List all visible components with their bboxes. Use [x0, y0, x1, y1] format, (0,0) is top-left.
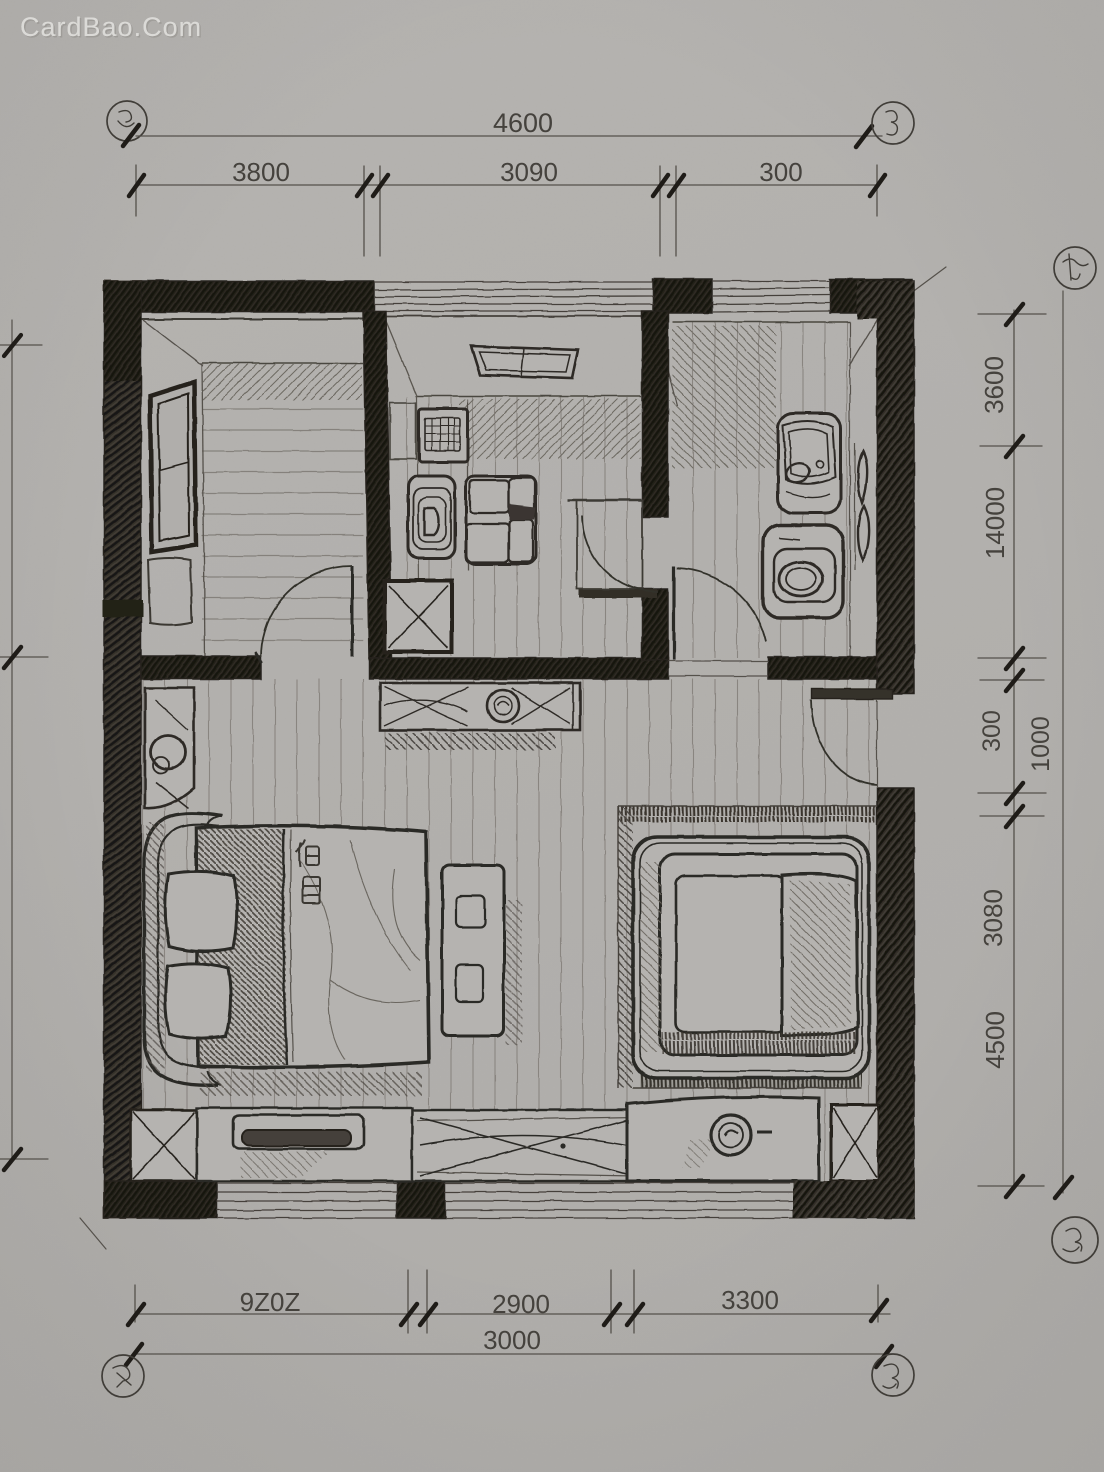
svg-text:4500: 4500 [980, 1011, 1010, 1069]
svg-text:1000: 1000 [1027, 716, 1055, 772]
svg-text:14000: 14000 [980, 487, 1010, 559]
svg-text:3000: 3000 [483, 1325, 541, 1355]
svg-text:300: 300 [759, 157, 802, 187]
svg-text:300: 300 [978, 710, 1006, 752]
svg-text:CardBao.Com: CardBao.Com [20, 12, 202, 42]
svg-text:2900: 2900 [492, 1289, 550, 1319]
svg-text:3080: 3080 [978, 889, 1008, 947]
svg-text:3090: 3090 [500, 157, 558, 187]
svg-text:4600: 4600 [493, 108, 553, 138]
svg-text:3300: 3300 [721, 1285, 779, 1315]
svg-text:9Z0Z: 9Z0Z [240, 1287, 301, 1317]
svg-text:3800: 3800 [232, 157, 290, 187]
svg-text:3600: 3600 [979, 356, 1009, 414]
